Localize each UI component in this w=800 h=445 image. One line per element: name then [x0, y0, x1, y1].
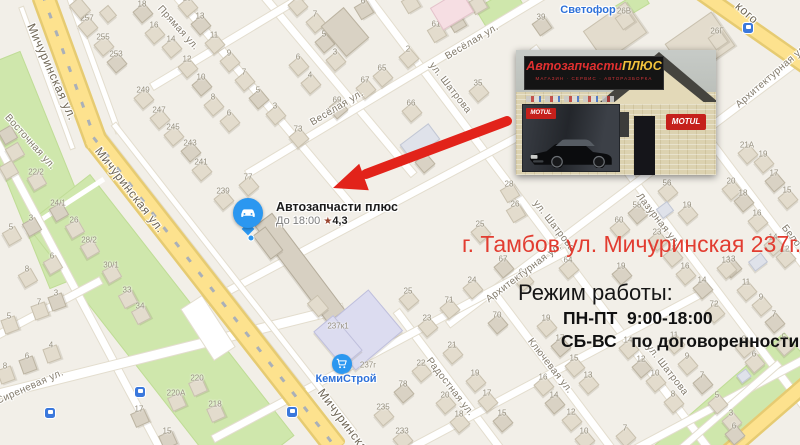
building-number: 26 [70, 216, 79, 225]
building-number: 7 [313, 10, 317, 19]
building-number: 15 [783, 186, 792, 195]
building-number: 6 [50, 252, 54, 261]
building-number: 25 [476, 220, 485, 229]
building [287, 0, 308, 17]
sign-title: Автозапчасти [526, 59, 622, 73]
photo-ad-banner: MOTUL [522, 104, 620, 172]
building-number: 243 [183, 139, 196, 148]
building-number: 4 [49, 341, 53, 350]
building-number: 253 [109, 50, 122, 59]
building-number: 77 [244, 173, 253, 182]
business-name: Автозапчасти плюс [276, 200, 398, 214]
photo-window [620, 112, 629, 137]
building-number: 220А [167, 389, 186, 398]
building [401, 0, 422, 14]
building-number: 67 [361, 76, 370, 85]
building-number: 12 [183, 55, 192, 64]
building-number: 5 [9, 223, 13, 232]
building-number: 233 [395, 427, 408, 436]
photo-brand-strip [526, 96, 614, 102]
building-number: 220 [190, 374, 203, 383]
sign-subtitle: МАГАЗИН · СЕРВИС · АВТОРАЗБОРКА [525, 76, 663, 81]
building-number: 6 [25, 352, 29, 361]
motul-sign: MOTUL [666, 114, 706, 130]
building-number: 19 [683, 201, 692, 210]
business-pin[interactable] [233, 198, 263, 228]
building-number: 12 [637, 355, 646, 364]
building-number: 22/2 [28, 168, 44, 177]
street-label: Архитектурная ул. [734, 42, 800, 111]
building-number: 24/1 [50, 199, 66, 208]
business-anchor-dot [248, 235, 255, 242]
building-number: 14 [698, 276, 707, 285]
building-number: 71 [445, 296, 454, 305]
building-label: 237к1 [327, 322, 348, 331]
building-number: 16 [681, 262, 690, 271]
building-number: 241 [194, 158, 207, 167]
building-number: 6 [296, 53, 300, 62]
building-number: 15 [498, 409, 507, 418]
building-number: 14 [550, 391, 559, 400]
storefront-photo: АвтозапчастиПЛЮС МАГАЗИН · СЕРВИС · АВТО… [516, 50, 716, 175]
building-number: 3 [333, 48, 337, 57]
building-number: 249 [136, 86, 149, 95]
building-number: 25 [404, 287, 413, 296]
schedule-weekdays: ПН-ПТ 9:00-18:00 [563, 308, 713, 329]
building-number: 14 [167, 35, 176, 44]
building-number: 8 [25, 265, 29, 274]
building-number: 28 [505, 180, 514, 189]
motul-banner-logo: MOTUL [526, 108, 556, 119]
building-number: 239 [216, 187, 229, 196]
building-number: 11 [742, 278, 750, 287]
building-number: 5 [256, 86, 260, 95]
building-number: 5 [7, 312, 11, 321]
building-number: 13 [196, 12, 205, 21]
building-number: 6 [227, 109, 231, 118]
building-number: 12 [567, 408, 576, 417]
building-number: 26 [511, 200, 520, 209]
building-number: 73 [294, 125, 303, 134]
building-number: 6 [732, 422, 736, 431]
transit-stop-icon[interactable] [743, 23, 753, 33]
transit-stop-icon[interactable] [45, 408, 55, 418]
building-number: 17 [483, 389, 492, 398]
building-number: 23 [423, 314, 432, 323]
building-number: 10 [197, 73, 206, 82]
building-number: 21 [448, 341, 457, 350]
schedule-weekend: СБ-ВС по договоренности [561, 331, 799, 352]
building-number: 2 [406, 45, 410, 54]
building-number: 20 [727, 177, 736, 186]
building-number: 7 [242, 68, 246, 77]
building [99, 5, 117, 23]
building-number: 8 [671, 390, 675, 399]
building-number: 21А [740, 141, 754, 150]
building-number: 13 [584, 371, 593, 380]
building-number: 9 [759, 293, 763, 302]
building-number: 24 [468, 276, 477, 285]
building-number: 7 [700, 371, 704, 380]
building-number: 17 [135, 405, 144, 414]
building-number: 10 [580, 427, 589, 436]
building-number: 11 [210, 31, 218, 40]
building-number: 70 [493, 311, 502, 320]
building-number: 16 [753, 209, 762, 218]
building-number: 7 [623, 424, 627, 433]
building-number: 4 [308, 71, 312, 80]
photo-store-sign: АвтозапчастиПЛЮС МАГАЗИН · СЕРВИС · АВТО… [524, 56, 664, 90]
transit-stop-icon[interactable] [287, 407, 297, 417]
building-number: 56 [663, 179, 672, 188]
building-number: 65 [378, 64, 387, 73]
sign-title-accent: ПЛЮС [622, 59, 662, 73]
business-rating: 4,3 [332, 215, 347, 227]
building-number: 66 [407, 99, 416, 108]
building-number: 3 [29, 214, 33, 223]
building-number: 5 [715, 391, 719, 400]
car-icon [238, 204, 258, 222]
building-number: 28/2 [81, 236, 97, 245]
building-number: 78 [399, 380, 408, 389]
building-label: 237г [360, 361, 376, 370]
building-number: 15 [163, 427, 172, 436]
building-number: 15 [183, 0, 192, 3]
business-hours: До 18:00 [276, 215, 320, 227]
building-number: 33 [123, 286, 132, 295]
building-number: 18 [739, 189, 748, 198]
car-image [527, 137, 617, 169]
business-hours-rating: До 18:00 ★4,3 [276, 215, 398, 227]
building-number: 245 [166, 123, 179, 132]
building-number: 235 [376, 403, 389, 412]
schedule-title: Режим работы: [518, 280, 673, 306]
building-number: 7 [37, 298, 41, 307]
svetofor-poi-label[interactable]: Светофор [560, 4, 615, 16]
building-number: 16 [539, 373, 548, 382]
transit-stop-icon[interactable] [135, 387, 145, 397]
address-annotation: г. Тамбов ул. Мичуринская 237г. [462, 231, 800, 258]
building-number: 9 [227, 49, 231, 58]
building-number: 8 [3, 362, 7, 371]
building-number: 26В [617, 7, 631, 16]
building-number: 34 [136, 302, 145, 311]
building-number: 60 [615, 216, 624, 225]
building-number: 35 [474, 79, 483, 88]
building-number: 16 [150, 21, 159, 30]
building-number: 19 [617, 262, 626, 271]
building-number: 19 [759, 150, 768, 159]
building-number: 17 [770, 169, 779, 178]
building-number: 39 [537, 13, 546, 22]
kemistroy-poi-icon[interactable] [332, 354, 352, 374]
building-number: 18 [138, 0, 147, 9]
kemistroy-poi-label[interactable]: КемиСтрой [315, 373, 376, 385]
photo-doorway [634, 116, 655, 175]
building-number: 9 [295, 0, 299, 2]
building-number: 57 [473, 0, 482, 1]
building-number: 8 [211, 93, 215, 102]
building-number: 3 [729, 409, 733, 418]
building-number: 247 [152, 106, 165, 115]
cart-icon [335, 357, 349, 371]
building-number: 9 [685, 352, 689, 361]
building-number: 3 [273, 102, 277, 111]
map-screenshot: 2572552532492472452432412397718161412108… [0, 0, 800, 445]
building-number: 10 [651, 369, 660, 378]
building-number: 26Г [710, 27, 723, 36]
building-number: 19 [471, 369, 480, 378]
building-number: 6 [361, 0, 365, 6]
building-number: 3 [54, 289, 58, 298]
building-number: 30/1 [103, 261, 119, 270]
building-number: 15 [570, 354, 579, 363]
rating-star-icon: ★ [323, 216, 332, 227]
building-number: 255 [96, 33, 109, 42]
building-number: 19 [542, 314, 551, 323]
building-number: 218 [208, 400, 221, 409]
building-number: 7 [772, 310, 776, 319]
business-label[interactable]: Автозапчасти плюс До 18:00 ★4,3 [276, 200, 398, 227]
